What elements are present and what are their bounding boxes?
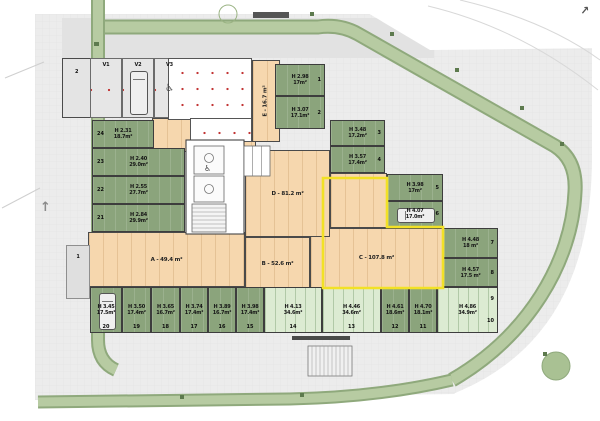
unit-area: 27.7m²: [129, 190, 148, 196]
unit-room-12: H 4.6118.6m²12: [381, 287, 409, 333]
unit-room-4: H 3.5717.4m²4: [330, 146, 385, 173]
stall-number: 2: [318, 110, 321, 116]
hall-D: D - 81.2 m²: [245, 150, 330, 237]
unit-room-16: H 3.8916.7m²16: [208, 287, 236, 333]
hall-label: A - 49.4 m²: [151, 257, 183, 263]
stall-number: 23: [97, 159, 104, 165]
hall-label: D - 81.2 m²: [271, 191, 303, 197]
stall-label: V3: [155, 62, 184, 68]
unit-area: 18.1m²: [414, 310, 433, 316]
unit-room-19: H 3.5017.4m²19: [122, 287, 151, 333]
unit-area: 17.4m²: [185, 310, 204, 316]
unit-label: H 3.5717.4m²: [348, 154, 367, 166]
unit-room-10: H 4.8634.9m²910: [437, 287, 498, 333]
unit-label: H 2.5527.7m²: [129, 184, 148, 196]
unit-area: 18.7m²: [114, 134, 133, 140]
unit-label: H 3.9817.4m²: [241, 304, 260, 316]
unit-area: 29.9m²: [129, 218, 148, 224]
unit-area: 17m²: [293, 80, 307, 86]
hall-label: C - 107.8 m²: [359, 255, 394, 261]
storage-box: 1: [66, 245, 90, 299]
hall-label: E - 16.7 m²: [263, 85, 269, 116]
pavement-arrow-icon: ↑: [40, 200, 51, 215]
parking-stall-V2: V2: [122, 58, 154, 118]
unit-room-23: H 2.4029.0m²23: [92, 148, 185, 176]
unit-room-20: H 3.4517.5m²20: [90, 287, 122, 333]
unit-label: H 3.5017.4m²: [127, 304, 146, 316]
unit-label: H 3.7417.4m²: [185, 304, 204, 316]
unit-area: 17.4m²: [127, 310, 146, 316]
unit-area: 18 m²: [463, 243, 478, 249]
wheelchair-icon: ♿: [165, 83, 174, 94]
unit-room-2: H 3.0717.1m²2: [275, 96, 325, 129]
unit-room-5: H 3.9817m²5: [387, 174, 443, 201]
unit-room-1: H 2.9817m²1: [275, 64, 325, 96]
unit-label: H 3.4517.5m²: [97, 304, 116, 316]
floor-plan: A - 49.4 m²B - 52.6 m²B2 - 14.9 m²C - 10…: [0, 0, 600, 421]
stall-number: 4: [378, 157, 381, 163]
unit-label: H 4.5717.5 m²: [460, 267, 480, 279]
unit-area: 34.6m²: [342, 310, 361, 316]
unit-label: H 4.0717.0m²: [406, 208, 425, 220]
unit-label: H 4.7018.1m²: [414, 304, 433, 316]
stall-number: 13: [348, 324, 355, 330]
stall-number: 7: [491, 240, 494, 246]
unit-label: H 4.4634.6m²: [342, 304, 361, 316]
unit-room-17: H 3.7417.4m²17: [180, 287, 208, 333]
unit-area: 34.9m²: [458, 310, 477, 316]
zone-label: 2: [75, 69, 78, 75]
building: A - 49.4 m²B - 52.6 m²B2 - 14.9 m²C - 10…: [0, 0, 600, 421]
unit-room-7: H 4.4818 m²7: [443, 228, 498, 258]
unit-label: H 3.6516.7m²: [156, 304, 175, 316]
hall-label: B - 52.6 m²: [262, 261, 294, 267]
unit-area: 17.2m²: [348, 133, 367, 139]
unit-label: H 4.1334.6m²: [284, 304, 303, 316]
unit-area: 17.0m²: [406, 214, 425, 220]
unit-label: H 3.8916.7m²: [213, 304, 232, 316]
stall-number: 21: [97, 215, 104, 221]
unit-label: H 3.0717.1m²: [291, 107, 310, 119]
unit-room-24: H 2.3118.7m²24: [92, 120, 154, 148]
stall-number: 12: [392, 324, 399, 330]
stall-number: 14: [290, 324, 297, 330]
hall-label: E - 16.8 m²: [191, 145, 217, 150]
stall-number: 22: [97, 187, 104, 193]
hall-B: B - 52.6 m²: [245, 237, 310, 290]
unit-room-3: H 3.4817.2m²3: [330, 120, 385, 146]
stall-number: 9: [491, 296, 494, 302]
stall-number: 10: [487, 318, 494, 324]
unit-room-13: H 4.4634.6m²13: [322, 287, 381, 333]
unit-label: H 2.9817m²: [291, 74, 308, 86]
unit-room-18: H 3.6516.7m²18: [151, 287, 180, 333]
unit-room-22: H 2.5527.7m²22: [92, 176, 185, 204]
stall-number: 18: [162, 324, 169, 330]
stall-number: 6: [436, 211, 439, 217]
hall-extension: [330, 173, 387, 228]
unit-label: H 4.8634.9m²: [458, 304, 477, 316]
stall-number: 11: [420, 324, 427, 330]
unit-area: 17.4m²: [241, 310, 260, 316]
stall-number: 1: [318, 77, 321, 83]
van-icon: [130, 71, 148, 115]
unit-area: 18.6m²: [386, 310, 405, 316]
unit-label: H 4.6118.6m²: [386, 304, 405, 316]
unit-label: H 3.9817m²: [406, 182, 423, 194]
hall-C: C - 107.8 m²: [310, 228, 443, 288]
unit-area: 17.4m²: [348, 160, 367, 166]
watermark-triangle: [486, 370, 552, 421]
stall-number: 19: [133, 324, 140, 330]
unit-area: 17.5 m²: [460, 273, 480, 279]
unit-area: 29.0m²: [129, 162, 148, 168]
unit-area: 16.7m²: [213, 310, 232, 316]
stall-label: V2: [123, 62, 153, 68]
stall-number: 15: [247, 324, 254, 330]
hall-A: A - 49.4 m²: [88, 232, 245, 287]
unit-label: H 2.8429.9m²: [129, 212, 148, 224]
unit-room-21: H 2.8429.9m²21: [92, 204, 185, 232]
unit-label: H 3.4817.2m²: [348, 127, 367, 139]
unit-label: H 2.4029.0m²: [129, 156, 148, 168]
unit-area: 34.6m²: [284, 310, 303, 316]
stall-number: 24: [97, 131, 104, 137]
unit-room-6: H 4.0717.0m²6: [387, 201, 443, 227]
unit-area: 17m²: [408, 188, 422, 194]
unit-room-14: H 4.1334.6m²14: [264, 287, 322, 333]
stall-number: 17: [191, 324, 198, 330]
stall-number: 3: [378, 130, 381, 136]
canopy-dotted-area: [190, 118, 252, 142]
unit-area: 16.7m²: [156, 310, 175, 316]
parking-stall-V1: V1: [90, 58, 122, 118]
unit-area: 17.1m²: [291, 113, 310, 119]
unit-label: H 2.3118.7m²: [114, 128, 133, 140]
stall-label: V1: [91, 62, 121, 68]
stall-number: 20: [103, 324, 110, 330]
unit-room-15: H 3.9817.4m²15: [236, 287, 264, 333]
stall-number: 5: [436, 185, 439, 191]
stall-number: 8: [491, 270, 494, 276]
storage-box-label: 1: [67, 254, 89, 260]
unit-room-11: H 4.7018.1m²11: [409, 287, 437, 333]
unit-area: 17.5m²: [97, 310, 116, 316]
unit-room-8: H 4.5717.5 m²8: [443, 258, 498, 287]
stall-number: 16: [219, 324, 226, 330]
unit-label: H 4.4818 m²: [462, 237, 479, 249]
